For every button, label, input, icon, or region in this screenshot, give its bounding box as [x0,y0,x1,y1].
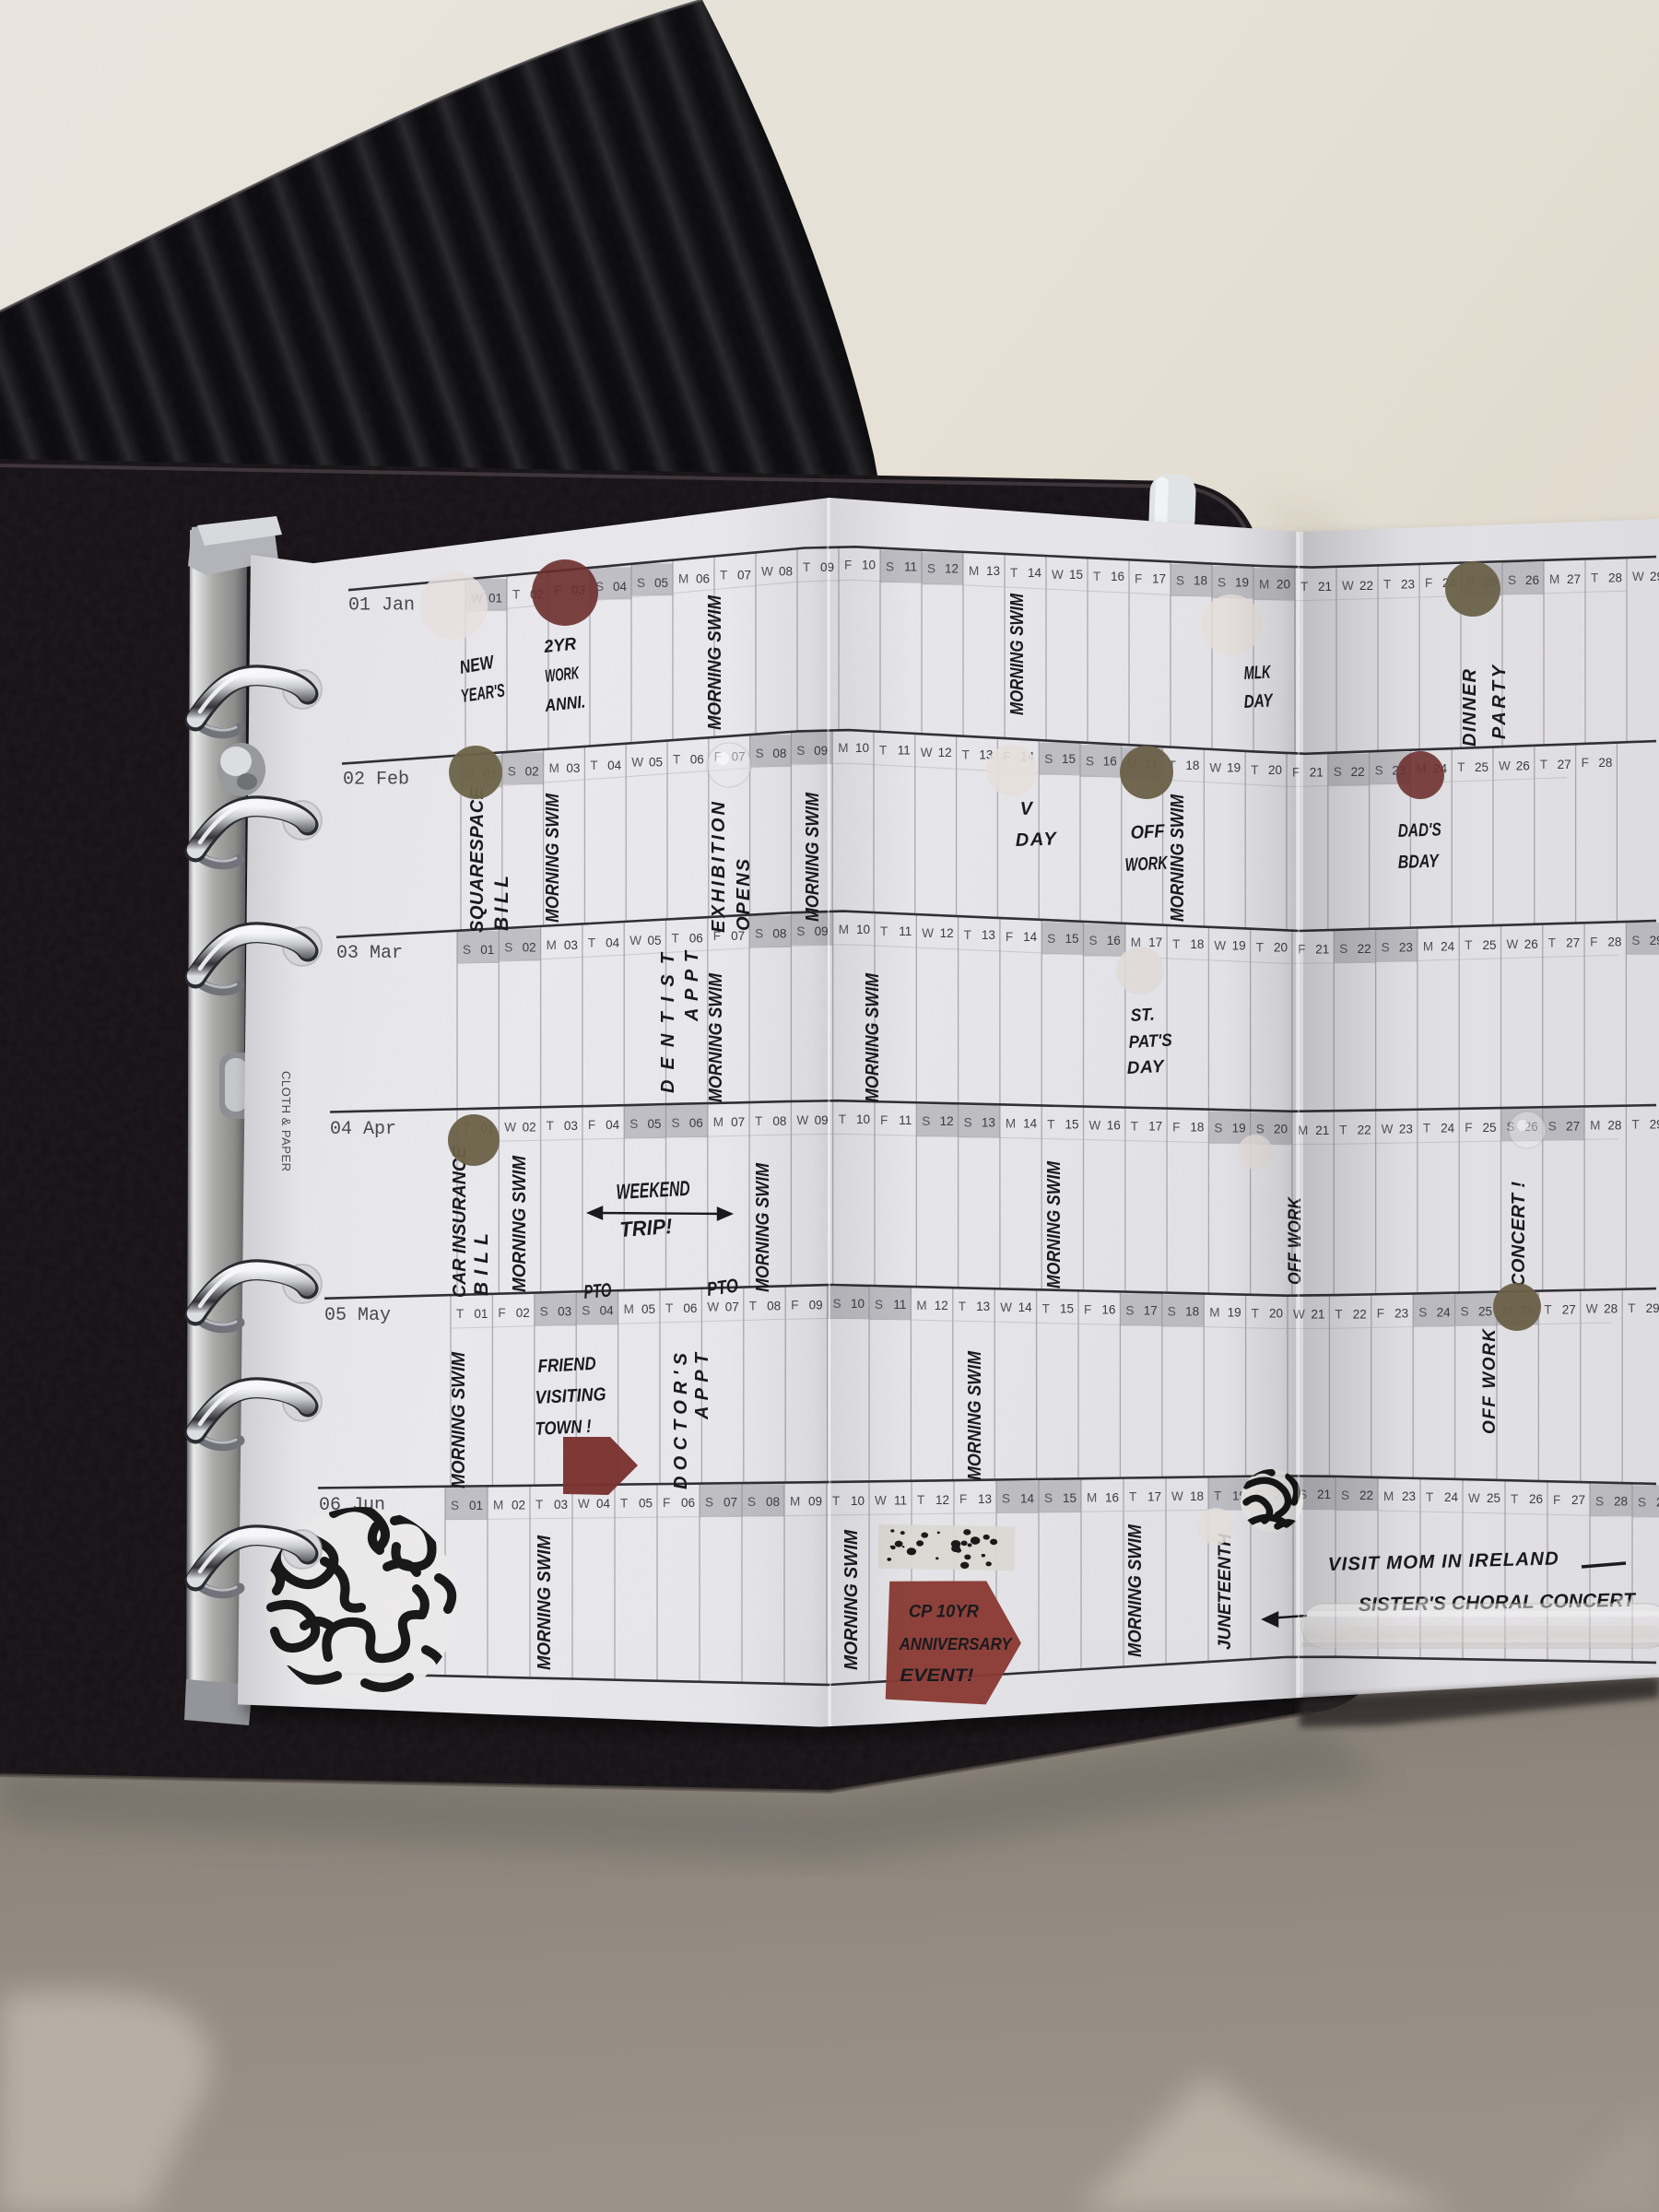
svg-text:01: 01 [474,1307,488,1321]
svg-text:T: T [665,1301,673,1315]
svg-text:25: 25 [1482,1121,1496,1135]
svg-text:S: S [1631,934,1640,947]
svg-text:DOCTOR'S: DOCTOR'S [671,1352,691,1489]
svg-text:04: 04 [606,935,620,949]
svg-text:TOWN !: TOWN ! [535,1417,592,1440]
svg-text:15: 15 [1060,1301,1074,1315]
svg-text:27: 27 [1566,1119,1580,1133]
svg-text:29: 29 [1650,570,1659,583]
svg-text:14: 14 [1018,1300,1033,1314]
svg-text:M: M [713,1115,724,1129]
svg-text:02: 02 [516,1306,530,1320]
svg-text:17: 17 [1148,935,1162,949]
svg-text:S: S [582,1303,590,1317]
svg-text:05: 05 [639,1497,653,1511]
svg-text:M: M [549,761,559,775]
svg-text:25: 25 [1487,1491,1500,1505]
svg-text:F: F [1590,935,1597,948]
svg-text:T: T [590,759,597,772]
svg-text:26: 26 [1516,759,1530,773]
svg-text:M: M [916,1299,926,1312]
svg-text:T: T [512,587,520,601]
svg-text:S: S [1089,934,1098,947]
svg-text:W: W [1499,759,1511,773]
svg-text:02: 02 [512,1498,525,1512]
svg-text:13: 13 [986,564,1000,578]
svg-text:W: W [1209,761,1221,775]
svg-text:MORNING SWIM: MORNING SWIM [535,1535,555,1670]
svg-text:29: 29 [1650,934,1659,947]
svg-text:W: W [629,934,641,947]
svg-text:26: 26 [1525,573,1539,587]
svg-text:16: 16 [1111,570,1124,583]
svg-text:12: 12 [940,1114,954,1128]
svg-text:MORNING SWIM: MORNING SWIM [1125,1524,1146,1657]
svg-text:02 Feb: 02 Feb [343,770,409,791]
svg-text:S: S [504,940,512,954]
svg-text:F: F [663,1496,670,1510]
svg-text:W: W [1214,939,1226,953]
svg-text:29: 29 [1646,1301,1659,1315]
svg-text:26: 26 [1529,1492,1543,1506]
svg-text:05: 05 [647,934,661,947]
svg-text:15: 15 [1065,1117,1078,1131]
svg-text:29: 29 [1650,1118,1659,1132]
svg-text:M: M [493,1498,503,1512]
svg-text:F: F [588,1118,595,1132]
svg-text:18: 18 [1194,573,1207,587]
svg-text:VISITING: VISITING [535,1384,606,1408]
svg-text:F: F [1135,571,1142,585]
svg-text:M: M [1423,939,1433,953]
svg-text:T: T [1010,566,1018,580]
svg-text:M: M [969,564,979,578]
svg-text:F: F [1172,1121,1180,1135]
svg-text:W: W [922,926,934,940]
svg-text:M: M [624,1302,634,1316]
svg-text:T: T [1544,1303,1551,1317]
svg-text:13: 13 [976,1300,990,1313]
svg-text:SQUARESPACE: SQUARESPACE [467,786,488,933]
svg-text:02: 02 [523,940,536,954]
svg-text:W: W [1052,568,1064,582]
svg-text:T: T [588,935,595,949]
svg-text:06: 06 [690,753,704,767]
svg-text:M: M [678,572,688,586]
svg-text:27: 27 [1558,758,1571,771]
svg-text:01 Jan: 01 Jan [348,594,415,616]
svg-text:04: 04 [596,1497,611,1511]
svg-text:17: 17 [1147,1490,1161,1504]
svg-text:15: 15 [1065,932,1078,946]
svg-text:T: T [1465,938,1472,952]
svg-text:S: S [1214,1122,1222,1135]
svg-text:T: T [620,1497,628,1511]
svg-text:W: W [921,746,933,759]
svg-text:W: W [1507,937,1519,951]
svg-text:MORNING SWIM: MORNING SWIM [1007,593,1028,715]
svg-text:06: 06 [689,1116,703,1130]
svg-text:17: 17 [1152,571,1166,585]
svg-text:T: T [959,1300,966,1313]
svg-text:05: 05 [647,1117,661,1131]
svg-text:T: T [1172,937,1180,951]
svg-text:DAY: DAY [1015,829,1057,851]
svg-text:S: S [1044,752,1053,766]
svg-text:T: T [673,753,680,767]
svg-text:17: 17 [1148,1120,1162,1134]
svg-text:03: 03 [564,938,578,952]
svg-text:03: 03 [558,1305,571,1319]
svg-text:S: S [1418,1306,1427,1320]
svg-text:T: T [1591,571,1598,585]
svg-text:TRIP!: TRIP! [619,1214,674,1241]
svg-text:05: 05 [654,576,668,590]
svg-text:W: W [1586,1302,1598,1316]
svg-text:05: 05 [641,1302,655,1316]
svg-text:W: W [1171,1489,1183,1503]
svg-text:F: F [1582,756,1589,770]
svg-text:17: 17 [1144,1303,1158,1317]
svg-text:25: 25 [1478,1305,1492,1319]
svg-text:PAT'S: PAT'S [1128,1031,1172,1053]
svg-text:S: S [1002,1492,1010,1506]
svg-text:T: T [1047,1117,1054,1131]
svg-text:MORNING SWIM: MORNING SWIM [1044,1160,1065,1288]
svg-text:18: 18 [1185,759,1199,772]
svg-text:S: S [1548,1119,1557,1133]
svg-text:15: 15 [1063,1491,1077,1505]
svg-text:28: 28 [1607,1119,1621,1133]
svg-text:S: S [1595,1494,1604,1508]
svg-text:01: 01 [469,1499,483,1512]
svg-text:W: W [707,1300,719,1314]
svg-text:02: 02 [523,1120,536,1134]
svg-text:14: 14 [1023,930,1038,944]
svg-text:CP 10YR: CP 10YR [909,1602,979,1621]
svg-text:14: 14 [1028,566,1042,580]
svg-text:15: 15 [1062,752,1076,766]
svg-text:EXHIBITION: EXHIBITION [709,801,729,933]
svg-text:18: 18 [1185,1305,1199,1319]
svg-text:M: M [1549,572,1559,586]
svg-text:16: 16 [1101,1302,1115,1316]
svg-text:F: F [1553,1493,1560,1507]
svg-text:16: 16 [1103,754,1117,768]
svg-text:OFF: OFF [1130,821,1166,843]
svg-text:24: 24 [1437,1306,1452,1320]
svg-text:16: 16 [1105,1490,1119,1504]
svg-text:M: M [1209,1306,1219,1320]
svg-text:24: 24 [1444,1490,1459,1504]
svg-text:T: T [1093,570,1100,583]
svg-text:12: 12 [938,746,952,759]
svg-text:WEEKEND: WEEKEND [616,1176,690,1204]
svg-text:V: V [1019,798,1034,819]
svg-text:T: T [1631,1118,1639,1132]
svg-text:04: 04 [607,759,622,772]
svg-text:04 Apr: 04 Apr [330,1119,396,1140]
svg-text:05 May: 05 May [324,1305,391,1326]
svg-text:F: F [1425,576,1432,590]
svg-text:MORNING SWIM: MORNING SWIM [449,1351,469,1488]
svg-text:S: S [672,1116,680,1130]
svg-text:24: 24 [1441,1122,1455,1135]
svg-text:S: S [922,1114,930,1128]
svg-text:MORNING SWIM: MORNING SWIM [705,594,725,730]
svg-text:14: 14 [1020,1492,1035,1506]
svg-text:S: S [1086,754,1094,768]
svg-text:F: F [498,1306,505,1320]
svg-text:27: 27 [1566,936,1580,950]
svg-text:T: T [962,747,970,761]
svg-text:ST.: ST. [1130,1006,1155,1026]
svg-text:S: S [927,562,935,576]
svg-text:12: 12 [935,1299,948,1312]
svg-text:PTO: PTO [582,1279,612,1303]
svg-text:T: T [1511,1492,1518,1506]
svg-text:T: T [456,1307,464,1321]
svg-text:06: 06 [689,932,703,946]
svg-text:W: W [578,1497,590,1511]
svg-text:S: S [1218,576,1226,590]
svg-text:M: M [547,938,557,952]
svg-text:01: 01 [488,592,502,606]
svg-text:FRIEND: FRIEND [537,1354,596,1377]
svg-text:28: 28 [1608,571,1622,585]
svg-text:S: S [964,1115,972,1129]
svg-text:18: 18 [1190,937,1204,951]
svg-text:W: W [631,756,643,770]
svg-text:S: S [1168,1305,1176,1319]
svg-text:MORNING SWIM: MORNING SWIM [543,793,563,923]
svg-text:T: T [1540,758,1547,771]
svg-text:MORNING SWIM: MORNING SWIM [510,1155,530,1292]
svg-text:CAR INSURANCE: CAR INSURANCE [450,1146,470,1298]
svg-text:S: S [451,1499,459,1512]
svg-text:15: 15 [1069,568,1083,582]
svg-text:CONCERT !: CONCERT ! [1509,1182,1529,1287]
svg-text:WORK: WORK [544,664,581,687]
svg-text:W: W [504,1120,516,1134]
svg-text:S: S [637,576,645,590]
svg-text:S: S [1047,932,1055,946]
svg-text:DAY: DAY [1126,1057,1166,1078]
svg-text:F: F [1465,1121,1472,1135]
svg-text:S: S [1638,1495,1646,1509]
svg-text:S: S [1508,573,1516,587]
svg-text:05: 05 [649,756,663,770]
svg-text:W: W [1468,1491,1480,1505]
svg-text:T: T [672,932,679,946]
svg-text:WORK: WORK [1124,853,1169,876]
svg-text:13: 13 [982,928,995,942]
svg-text:25: 25 [1475,760,1488,774]
svg-text:T: T [1426,1490,1433,1504]
svg-text:18: 18 [1190,1121,1204,1135]
svg-text:06: 06 [683,1301,697,1315]
svg-text:04: 04 [613,580,628,594]
svg-text:W: W [1632,570,1644,583]
svg-text:F: F [1084,1302,1091,1316]
svg-text:S: S [1461,1305,1469,1319]
svg-text:T: T [720,569,727,582]
svg-text:T: T [1457,760,1465,774]
svg-text:T: T [1129,1490,1136,1504]
svg-text:14: 14 [1023,1116,1038,1130]
svg-text:W: W [1000,1300,1012,1314]
svg-text:M: M [1006,1116,1016,1130]
svg-text:BILL: BILL [491,876,512,931]
svg-text:12: 12 [935,1493,949,1507]
svg-text:27: 27 [1571,1493,1585,1507]
svg-text:T: T [1214,1488,1221,1502]
svg-text:25: 25 [1482,938,1496,952]
svg-text:S: S [1176,573,1184,587]
svg-text:T: T [547,1119,554,1133]
svg-text:S: S [508,764,516,778]
svg-text:S: S [1125,1303,1134,1317]
svg-text:06: 06 [681,1496,695,1510]
svg-text:24: 24 [1441,939,1455,953]
svg-text:04: 04 [600,1303,615,1317]
svg-text:T: T [964,928,971,942]
svg-text:T: T [1548,936,1556,950]
svg-text:26: 26 [1524,937,1538,951]
svg-text:MORNING SWIM: MORNING SWIM [706,972,726,1102]
svg-text:2YR: 2YR [542,634,577,657]
svg-text:16: 16 [1107,934,1121,947]
svg-text:T: T [1042,1301,1050,1315]
svg-text:T: T [1131,1120,1138,1134]
svg-text:S: S [705,1496,713,1510]
svg-text:F: F [1006,930,1013,944]
svg-text:W: W [1089,1119,1101,1133]
svg-text:MORNING SWIM: MORNING SWIM [965,1350,985,1480]
svg-text:T: T [1628,1301,1635,1315]
svg-text:13: 13 [982,1115,995,1129]
svg-text:12: 12 [940,926,954,940]
svg-text:03: 03 [554,1498,568,1512]
svg-text:04: 04 [606,1118,620,1132]
svg-text:03 Mar: 03 Mar [336,943,403,964]
svg-text:T: T [1423,1122,1430,1135]
svg-text:OFF WORK: OFF WORK [1480,1328,1500,1434]
svg-text:S: S [540,1305,548,1319]
svg-text:12: 12 [945,562,959,576]
svg-text:28: 28 [1598,756,1612,770]
svg-text:ANNIVERSARY: ANNIVERSARY [899,1635,1014,1653]
svg-text:06: 06 [696,572,710,586]
svg-text:28: 28 [1607,935,1621,948]
svg-text:18: 18 [1190,1489,1204,1503]
svg-text:28: 28 [1614,1494,1628,1508]
svg-text:M: M [1590,1119,1600,1133]
svg-text:13: 13 [978,1492,992,1506]
svg-text:27: 27 [1562,1303,1576,1317]
svg-text:MORNING SWIM: MORNING SWIM [1168,794,1188,922]
svg-text:DINNER: DINNER [1460,668,1480,747]
svg-text:T: T [917,1493,924,1507]
svg-text:M: M [1087,1490,1097,1504]
svg-text:F: F [959,1492,967,1506]
svg-text:S: S [629,1117,638,1131]
svg-text:16: 16 [1107,1119,1121,1133]
svg-text:03: 03 [564,1119,578,1133]
svg-text:S: S [1044,1491,1053,1505]
svg-text:01: 01 [480,943,494,957]
svg-text:27: 27 [1567,572,1581,586]
svg-text:T: T [535,1498,543,1512]
svg-text:03: 03 [566,761,580,775]
svg-text:28: 28 [1604,1302,1618,1316]
svg-text:S: S [463,943,471,957]
svg-text:02: 02 [525,764,539,778]
